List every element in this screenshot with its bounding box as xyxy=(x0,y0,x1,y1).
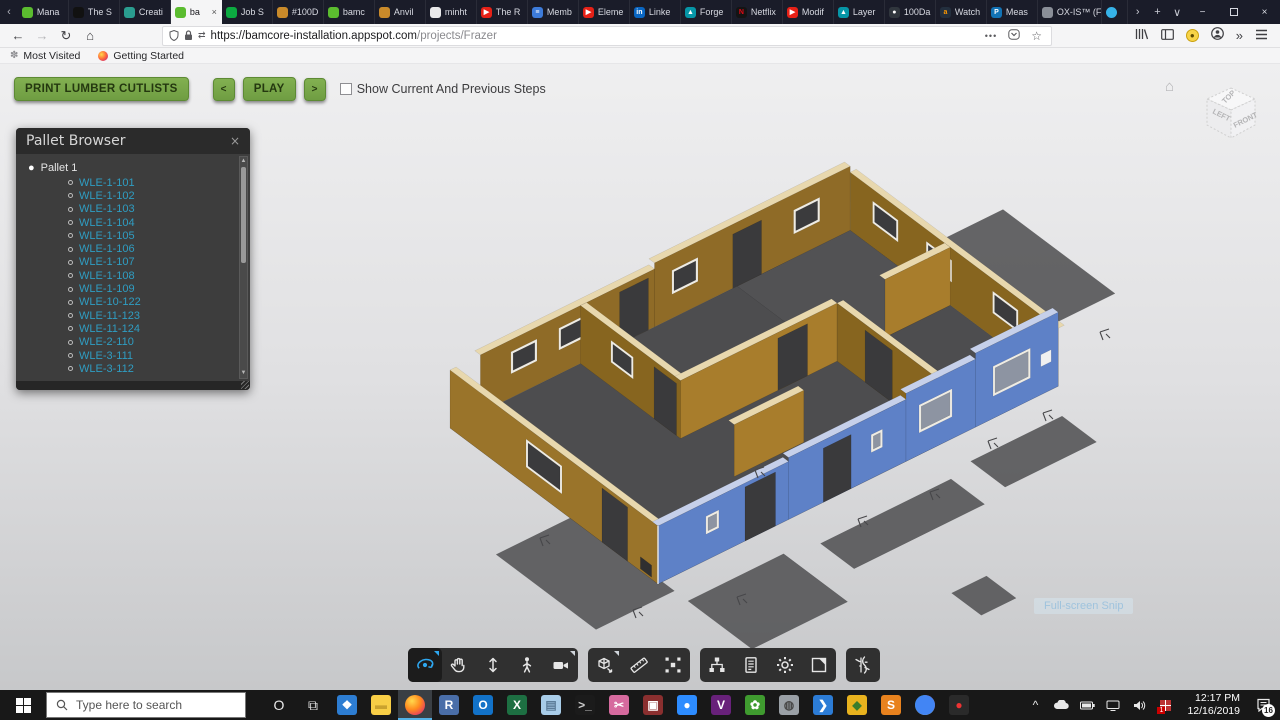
dimension-mark xyxy=(1100,329,1110,340)
circle-bullet-icon xyxy=(68,366,73,371)
tab-label: Mana xyxy=(37,7,60,17)
github-icon: ● xyxy=(889,7,900,18)
minimize-button[interactable]: − xyxy=(1187,0,1218,24)
tab-scroll-right-icon[interactable]: › xyxy=(1128,0,1148,24)
bamcore-icon xyxy=(175,7,186,18)
bamcore-icon xyxy=(328,7,339,18)
viewer-content: PRINT LUMBER CUTLISTS < PLAY > Show Curr… xyxy=(0,64,1280,690)
desktop: ‹ ManaThe SCreatiba×Job S#100DbamcAnvilm… xyxy=(0,0,1280,720)
taskbar-kite-icon[interactable]: ◆ xyxy=(840,690,874,720)
circle-bullet-icon xyxy=(68,300,73,305)
taskbar-visual-studio-icon[interactable]: V xyxy=(704,690,738,720)
tab[interactable]: ▲Forge xyxy=(681,0,732,24)
scroll-down-icon[interactable]: ▼ xyxy=(240,369,247,378)
panel-title: Pallet Browser xyxy=(26,133,125,149)
panel-footer xyxy=(16,381,250,390)
circle-bullet-icon xyxy=(68,260,73,265)
flyout-arrow-icon[interactable] xyxy=(570,651,575,656)
tab-label: ba xyxy=(190,7,200,17)
sticky-notes-icon: ▤ xyxy=(541,695,561,715)
cortana-icon: O xyxy=(269,695,289,715)
tab[interactable]: aWatch xyxy=(936,0,987,24)
tab-label: Forge xyxy=(700,7,724,17)
viewer-toolbar xyxy=(408,648,880,682)
tab[interactable]: ▲Layer xyxy=(834,0,885,24)
windows-taskbar: Type here to search O⧉❖▬ROX▤>_✂▣●V✿◍❯◆S●… xyxy=(0,690,1280,720)
panel-scrollbar[interactable]: ▲ ▼ xyxy=(239,156,248,379)
pallet-item-link[interactable]: WLE-1-105 xyxy=(79,230,135,242)
reload-button[interactable]: ↻ xyxy=(54,26,78,46)
ground-shadow xyxy=(821,479,985,569)
tab-label: Eleme xyxy=(598,7,624,17)
command-prompt-icon: >_ xyxy=(575,695,595,715)
tab-label: Anvil xyxy=(394,7,414,17)
pallet-browser-panel: Pallet Browser × ●Pallet 1WLE-1-101WLE-1… xyxy=(16,128,250,390)
tab-label: Modif xyxy=(802,7,824,17)
kite-icon: ◆ xyxy=(847,695,867,715)
pluralsight-icon: P xyxy=(991,7,1002,18)
nav-right-icons: ● » xyxy=(1135,27,1280,45)
ground-shadow xyxy=(952,576,1017,615)
tab-label: Meas xyxy=(1006,7,1028,17)
tab-label: bamc xyxy=(343,7,365,17)
permissions-icon[interactable]: ⇄ xyxy=(198,30,206,41)
shield-icon xyxy=(124,7,135,18)
show-steps-checkbox[interactable] xyxy=(340,83,352,95)
new-tab-button[interactable]: + xyxy=(1148,0,1168,24)
tab[interactable]: ▶Eleme xyxy=(579,0,630,24)
window-controls: − × xyxy=(1187,0,1280,24)
browser-nav-bar: ← → ↻ ⌂ ⇄ https://bamcore-installation.a… xyxy=(0,24,1280,48)
snip-watermark: Full-screen Snip xyxy=(1034,598,1133,614)
autodesk-icon: ▲ xyxy=(838,7,849,18)
sublime-text-icon: S xyxy=(881,695,901,715)
show-steps-row: Show Current And Previous Steps xyxy=(340,82,546,96)
forward-button[interactable]: → xyxy=(30,26,54,46)
url-text[interactable]: https://bamcore-installation.appspot.com… xyxy=(211,30,977,42)
pallet-item: WLE-10-122 xyxy=(68,296,236,309)
pallet-browser-body: ●Pallet 1WLE-1-101WLE-1-102WLE-1-103WLE-… xyxy=(16,154,250,381)
start-button[interactable] xyxy=(0,690,46,720)
tab-label: Memb xyxy=(547,7,572,17)
tab-label: Layer xyxy=(853,7,876,17)
excel-icon: X xyxy=(507,695,527,715)
circle-bullet-icon xyxy=(68,340,73,345)
pallet-item-link[interactable]: WLE-1-102 xyxy=(79,190,135,202)
tab[interactable]: ≡Memb xyxy=(528,0,579,24)
extension-icon[interactable]: ● xyxy=(1186,29,1199,42)
play-button[interactable]: PLAY xyxy=(243,77,296,101)
upwork-icon xyxy=(22,7,33,18)
tab[interactable]: #100D xyxy=(273,0,324,24)
bookmark-star-icon[interactable]: ☆ xyxy=(1028,29,1045,43)
tab-label: 100Da xyxy=(904,7,931,17)
viewer-toolbar-group xyxy=(588,648,690,682)
taskbar-dropbox-icon[interactable]: ❖ xyxy=(330,690,364,720)
tab-scroll-left-icon[interactable]: ‹ xyxy=(0,0,18,24)
pallet-item: WLE-3-112 xyxy=(68,362,236,375)
circle-bullet-icon xyxy=(68,193,73,198)
search-icon xyxy=(56,699,68,711)
pallet-item: WLE-11-124 xyxy=(68,322,236,335)
youtube-icon: ▶ xyxy=(583,7,594,18)
tab[interactable]: The S xyxy=(69,0,120,24)
tab[interactable]: Mana xyxy=(18,0,69,24)
tab[interactable]: NNetflix xyxy=(732,0,783,24)
system-tray: ^ 1 12:17 PM 12/16/2019 xyxy=(1027,690,1280,720)
taskbar-clock[interactable]: 12:17 PM 12/16/2019 xyxy=(1183,692,1240,718)
taskbar-sticky-notes-icon[interactable]: ▤ xyxy=(534,690,568,720)
doc-icon xyxy=(1042,7,1053,18)
blue-dot-icon xyxy=(1106,7,1117,18)
pallet-item-link[interactable]: WLE-2-110 xyxy=(79,336,134,348)
tab-label: Creati xyxy=(139,7,163,17)
lock-icon[interactable] xyxy=(184,30,193,41)
taskbar-search-input[interactable]: Type here to search xyxy=(46,692,246,718)
circle-bullet-icon xyxy=(68,313,73,318)
pallet-item: WLE-1-108 xyxy=(68,269,236,282)
settings-tool-icon[interactable] xyxy=(768,648,802,682)
outlook-icon: O xyxy=(473,695,493,715)
viewcube-home-icon[interactable]: ⌂ xyxy=(1165,78,1174,95)
notification-app-icon[interactable]: 1 xyxy=(1157,699,1173,712)
linkedin-icon: in xyxy=(634,7,645,18)
taskbar-rstudio-icon[interactable]: R xyxy=(432,690,466,720)
taskbar-sublime-text-icon[interactable]: S xyxy=(874,690,908,720)
circle-bullet-icon xyxy=(68,287,73,292)
sidebar-icon[interactable] xyxy=(1161,27,1174,45)
ground-shadow xyxy=(971,416,1097,487)
taskbar-zoom-app-icon[interactable]: ● xyxy=(670,690,704,720)
app-toolbar: PRINT LUMBER CUTLISTS < PLAY > Show Curr… xyxy=(14,77,546,101)
screen-recorder-icon: ▣ xyxy=(643,695,663,715)
tab-label: #100D xyxy=(292,7,319,17)
flyout-arrow-icon[interactable] xyxy=(434,651,439,656)
hamburger-menu-icon[interactable] xyxy=(1255,27,1268,45)
pallet-item-link[interactable]: WLE-1-103 xyxy=(79,203,135,215)
pallet-item: WLE-1-101 xyxy=(68,176,236,189)
bloomberg-icon xyxy=(73,7,84,18)
tab-label: Watch xyxy=(955,7,980,17)
explode-tool-icon[interactable] xyxy=(656,648,690,682)
firefox-icon xyxy=(98,51,108,61)
pallet-browser-header[interactable]: Pallet Browser × xyxy=(16,128,250,154)
pallet-item: WLE-1-107 xyxy=(68,256,236,269)
pallet-item-link[interactable]: WLE-11-124 xyxy=(79,323,140,335)
zoom-app-icon: ● xyxy=(677,695,697,715)
network-icon[interactable] xyxy=(1105,700,1121,711)
viewer-toolbar-group xyxy=(700,648,836,682)
close-button[interactable]: × xyxy=(1249,0,1280,24)
glassdoor-icon xyxy=(226,7,237,18)
tab-label: The R xyxy=(496,7,521,17)
tray-chevron-icon[interactable]: ^ xyxy=(1027,698,1043,712)
back-button[interactable]: ← xyxy=(6,26,30,46)
tab-label: OX-IS™ (F xyxy=(1057,7,1102,17)
model-views-tool-icon[interactable] xyxy=(588,648,622,682)
circle-bullet-icon xyxy=(68,353,73,358)
tab[interactable]: Anvil xyxy=(375,0,426,24)
taskbar-bamcore-app-icon[interactable]: ✿ xyxy=(738,690,772,720)
bullet-icon: ● xyxy=(28,162,35,174)
circle-bullet-icon xyxy=(68,207,73,212)
autodesk-icon: ▲ xyxy=(685,7,696,18)
bookmark-getting-started[interactable]: Getting Started xyxy=(98,50,184,62)
taskbar-task-view-icon[interactable]: ⧉ xyxy=(296,690,330,720)
browser-tab-bar: ‹ ManaThe SCreatiba×Job S#100DbamcAnvilm… xyxy=(0,0,1280,24)
pallet-item-link[interactable]: WLE-11-123 xyxy=(79,310,140,322)
beer-icon xyxy=(277,7,288,18)
first-person-tool-icon[interactable] xyxy=(510,648,544,682)
taskbar-recorder-icon[interactable]: ● xyxy=(942,690,976,720)
github-icon xyxy=(430,7,441,18)
vscode-icon: ❯ xyxy=(813,695,833,715)
firefox-icon xyxy=(405,695,425,715)
sketchup-icon: ◍ xyxy=(779,695,799,715)
orbit-tool-icon[interactable] xyxy=(408,648,442,682)
tab[interactable]: inLinke xyxy=(630,0,681,24)
maximize-button[interactable] xyxy=(1218,0,1249,24)
ground-shadow xyxy=(688,554,848,649)
step-next-button[interactable]: > xyxy=(304,78,326,101)
show-steps-label: Show Current And Previous Steps xyxy=(357,82,546,96)
bamcore-tool-icon[interactable] xyxy=(846,648,880,682)
print-lumber-cutlists-button[interactable]: PRINT LUMBER CUTLISTS xyxy=(14,77,189,101)
circle-bullet-icon xyxy=(68,180,73,185)
snipping-tool-icon: ✂ xyxy=(609,695,629,715)
tab[interactable]: OX-IS™ (F xyxy=(1038,0,1102,24)
pallet-item: WLE-11-123 xyxy=(68,309,236,322)
action-center-icon[interactable]: 16 xyxy=(1250,690,1276,720)
step-prev-button[interactable]: < xyxy=(213,78,235,101)
tab[interactable]: minht xyxy=(426,0,477,24)
taskbar-sketchup-icon[interactable]: ◍ xyxy=(772,690,806,720)
pallet-item-link[interactable]: WLE-1-104 xyxy=(79,217,135,229)
pallet-item: WLE-2-110 xyxy=(68,336,236,349)
tab[interactable]: PMeas xyxy=(987,0,1038,24)
circle-bullet-icon xyxy=(68,233,73,238)
library-icon[interactable] xyxy=(1135,27,1149,45)
tab[interactable]: bamc xyxy=(324,0,375,24)
fullscreen-tool-icon[interactable] xyxy=(802,648,836,682)
tab-label: Job S xyxy=(241,7,264,17)
taskbar-command-prompt-icon[interactable]: >_ xyxy=(568,690,602,720)
dimension-mark xyxy=(988,438,998,449)
taskbar-snipping-tool-icon[interactable]: ✂ xyxy=(602,690,636,720)
rstudio-icon: R xyxy=(439,695,459,715)
file-explorer-icon: ▬ xyxy=(371,695,391,715)
camera-tool-icon[interactable] xyxy=(544,648,578,682)
tab[interactable]: ▶The R xyxy=(477,0,528,24)
pallet-item: WLE-1-109 xyxy=(68,282,236,295)
pallet-item: WLE-1-106 xyxy=(68,242,236,255)
chrome-icon xyxy=(915,695,935,715)
bamcore-app-icon: ✿ xyxy=(745,695,765,715)
home-button[interactable]: ⌂ xyxy=(78,26,102,46)
panel-close-icon[interactable]: × xyxy=(230,134,240,148)
resize-grip[interactable] xyxy=(241,381,249,389)
dropbox-icon: ❖ xyxy=(337,695,357,715)
circle-bullet-icon xyxy=(68,247,73,252)
task-view-icon: ⧉ xyxy=(303,695,323,715)
pocket-icon[interactable] xyxy=(1005,29,1023,43)
amazon-icon: a xyxy=(940,7,951,18)
tab-label: minht xyxy=(445,7,467,17)
pallet-item-link[interactable]: WLE-1-108 xyxy=(79,270,135,282)
netflix-icon: N xyxy=(736,7,747,18)
tab[interactable]: Job S xyxy=(222,0,273,24)
tab-label: Linke xyxy=(649,7,671,17)
shield-icon[interactable] xyxy=(169,30,179,41)
battery-icon[interactable] xyxy=(1079,701,1095,710)
taskbar-outlook-icon[interactable]: O xyxy=(466,690,500,720)
page-actions-icon[interactable]: ••• xyxy=(982,31,1000,41)
view-cube[interactable]: TOP LEFT FRONT xyxy=(1198,82,1264,146)
visual-studio-icon: V xyxy=(711,695,731,715)
tab-label: Netflix xyxy=(751,7,776,17)
tab[interactable] xyxy=(1102,0,1128,24)
viewer-toolbar-group xyxy=(846,648,880,682)
pallet-item-link[interactable]: WLE-10-122 xyxy=(79,296,141,308)
pallet-group[interactable]: ●Pallet 1 xyxy=(28,162,236,174)
taskbar-file-explorer-icon[interactable]: ▬ xyxy=(364,690,398,720)
account-icon[interactable] xyxy=(1211,27,1224,45)
properties-tool-icon[interactable] xyxy=(734,648,768,682)
pallet-item-link[interactable]: WLE-1-109 xyxy=(79,283,135,295)
pallet-item-link[interactable]: WLE-3-111 xyxy=(79,350,133,362)
taskbar-screen-recorder-icon[interactable]: ▣ xyxy=(636,690,670,720)
address-bar[interactable]: ⇄ https://bamcore-installation.appspot.c… xyxy=(162,26,1052,46)
circle-bullet-icon xyxy=(68,220,73,225)
scrollbar-thumb[interactable] xyxy=(241,167,246,263)
bookmark-most-visited[interactable]: ✽Most Visited xyxy=(10,50,80,62)
volume-icon[interactable] xyxy=(1131,700,1147,711)
model-browser-tool-icon[interactable] xyxy=(700,648,734,682)
overflow-menu-icon[interactable]: » xyxy=(1236,28,1243,43)
pallet-item-link[interactable]: WLE-3-112 xyxy=(79,363,134,375)
tab[interactable]: ●100Da xyxy=(885,0,936,24)
taskbar-firefox-icon[interactable] xyxy=(398,690,432,720)
flyout-arrow-icon[interactable] xyxy=(614,651,619,656)
list-tabs-icon[interactable]: ∨ xyxy=(1167,0,1187,24)
pallet-item-link[interactable]: WLE-1-106 xyxy=(79,243,135,255)
pallet-item: WLE-1-105 xyxy=(68,229,236,242)
youtube-icon: ▶ xyxy=(481,7,492,18)
zoom-tool-icon[interactable] xyxy=(476,648,510,682)
folder-pin-icon: ✽ xyxy=(10,50,18,61)
pallet-item-link[interactable]: WLE-1-101 xyxy=(79,177,135,189)
pallet-item: WLE-1-102 xyxy=(68,189,236,202)
pallet-item: WLE-1-103 xyxy=(68,203,236,216)
tab-close-icon[interactable]: × xyxy=(212,7,217,17)
tab[interactable]: ▶Modif xyxy=(783,0,834,24)
recorder-icon: ● xyxy=(949,695,969,715)
tab-label: The S xyxy=(88,7,112,17)
list-icon: ≡ xyxy=(532,7,543,18)
pallet-item-link[interactable]: WLE-1-107 xyxy=(79,256,135,268)
onedrive-cloud-icon[interactable] xyxy=(1053,700,1069,710)
scroll-up-icon[interactable]: ▲ xyxy=(240,157,247,166)
circle-bullet-icon xyxy=(68,273,73,278)
beer-icon xyxy=(379,7,390,18)
pallet-item: WLE-1-104 xyxy=(68,216,236,229)
viewer-toolbar-group xyxy=(408,648,578,682)
pallet-item: WLE-3-111 xyxy=(68,349,236,362)
bookmarks-bar: ✽Most Visited Getting Started xyxy=(0,48,1280,64)
tab[interactable]: Creati xyxy=(120,0,171,24)
tab-active[interactable]: ba× xyxy=(171,0,222,24)
taskbar-excel-icon[interactable]: X xyxy=(500,690,534,720)
dimension-mark xyxy=(1043,410,1053,421)
youtube-icon: ▶ xyxy=(787,7,798,18)
taskbar-vscode-icon[interactable]: ❯ xyxy=(806,690,840,720)
windows-logo-icon xyxy=(16,698,31,713)
taskbar-cortana-icon[interactable]: O xyxy=(262,690,296,720)
pan-tool-icon[interactable] xyxy=(442,648,476,682)
circle-bullet-icon xyxy=(68,326,73,331)
taskbar-chrome-icon[interactable] xyxy=(908,690,942,720)
measure-tool-icon[interactable] xyxy=(622,648,656,682)
